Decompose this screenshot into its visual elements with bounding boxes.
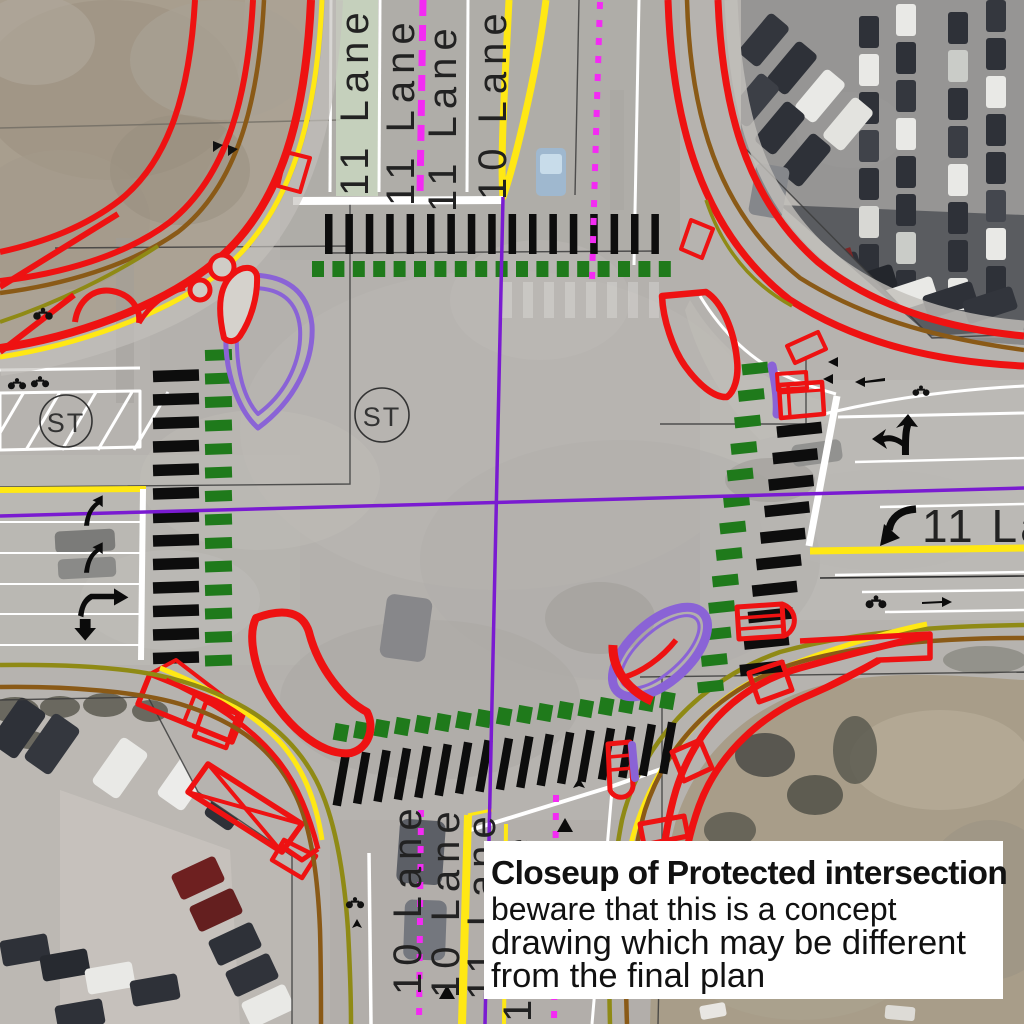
svg-text:11 Lane: 11 Lane: [379, 15, 423, 206]
svg-text:11 Lane: 11 Lane: [333, 5, 377, 196]
svg-text:from the final plan: from the final plan: [491, 957, 765, 995]
svg-text:11 Lane: 11 Lane: [421, 21, 465, 212]
svg-text:10 Lane: 10 Lane: [471, 6, 515, 200]
svg-text:Closeup of Protected intersect: Closeup of Protected intersection: [491, 855, 1007, 892]
svg-text:11 La: 11 La: [922, 500, 1024, 552]
svg-text:ST: ST: [47, 408, 86, 438]
svg-text:ST: ST: [363, 402, 402, 432]
svg-text:beware that this is a concept: beware that this is a concept: [491, 891, 897, 927]
